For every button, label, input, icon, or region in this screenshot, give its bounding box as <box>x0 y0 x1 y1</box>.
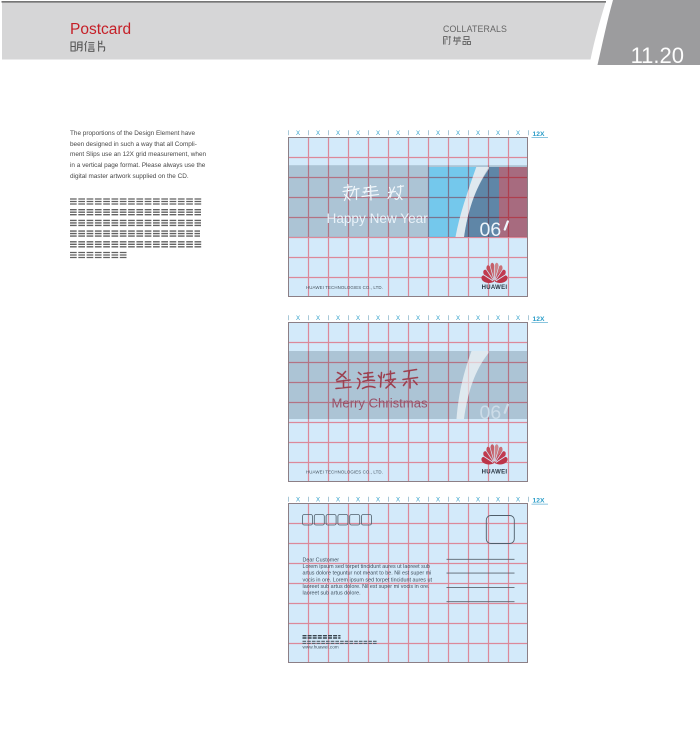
svg-text:X: X <box>336 130 340 137</box>
svg-text:X: X <box>396 130 400 137</box>
svg-text:06: 06 <box>480 402 502 424</box>
svg-text:X: X <box>356 315 360 322</box>
svg-text:Lorem ipsum sed torpet tincidu: Lorem ipsum sed torpet tincidunt aures u… <box>303 564 430 570</box>
svg-text:X: X <box>376 130 380 137</box>
svg-text:Dear Customer: Dear Customer <box>303 557 340 563</box>
svg-text:X: X <box>336 497 340 504</box>
svg-text:12X: 12X <box>533 131 545 138</box>
svg-text:X: X <box>496 497 500 504</box>
svg-text:X: X <box>356 130 360 137</box>
svg-text:X: X <box>516 315 520 322</box>
svg-text:X: X <box>476 497 480 504</box>
svg-text:X: X <box>376 315 380 322</box>
svg-text:artus dolore teguntur not mean: artus dolore teguntur not meant to be. N… <box>303 571 432 577</box>
svg-text:X: X <box>396 497 400 504</box>
svg-text:laoreet sub artus dolore. Nil: laoreet sub artus dolore. Nil est super … <box>303 584 430 590</box>
svg-text:X: X <box>436 130 440 137</box>
svg-text:HUAWEI: HUAWEI <box>482 285 508 291</box>
svg-text:X: X <box>316 130 320 137</box>
svg-text:HUAWEI TECHNOLOGIES CO., LTD.: HUAWEI TECHNOLOGIES CO., LTD. <box>306 285 383 290</box>
svg-text:X: X <box>296 130 300 137</box>
svg-text:X: X <box>396 315 400 322</box>
svg-text:X: X <box>496 315 500 322</box>
svg-text:www.huawei.com: www.huawei.com <box>303 645 339 650</box>
svg-text:X: X <box>476 130 480 137</box>
svg-text:Happy New Year: Happy New Year <box>327 211 429 226</box>
svg-text:vocis in ore. Lorem ipsum sed: vocis in ore. Lorem ipsum sed torpet tin… <box>303 577 433 583</box>
svg-text:12X: 12X <box>533 316 545 323</box>
svg-text:X: X <box>296 315 300 322</box>
svg-text:laoreet sub artus dolore.: laoreet sub artus dolore. <box>303 591 361 597</box>
svg-text:X: X <box>496 130 500 137</box>
svg-text:X: X <box>316 497 320 504</box>
svg-text:X: X <box>456 497 460 504</box>
svg-text:X: X <box>376 497 380 504</box>
svg-text:X: X <box>416 130 420 137</box>
svg-text:X: X <box>456 315 460 322</box>
svg-text:X: X <box>356 497 360 504</box>
svg-text:X: X <box>436 497 440 504</box>
svg-text:X: X <box>456 130 460 137</box>
svg-text:HUAWEI TECHNOLOGIES CO., LTD.: HUAWEI TECHNOLOGIES CO., LTD. <box>306 470 383 475</box>
svg-text:X: X <box>416 497 420 504</box>
svg-text:HUAWEI: HUAWEI <box>482 470 508 476</box>
svg-text:X: X <box>336 315 340 322</box>
svg-text:06: 06 <box>480 219 502 241</box>
svg-text:X: X <box>516 497 520 504</box>
svg-text:X: X <box>296 497 300 504</box>
svg-text:Merry Christmas: Merry Christmas <box>332 396 428 411</box>
svg-text:X: X <box>436 315 440 322</box>
svg-text:X: X <box>476 315 480 322</box>
svg-text:X: X <box>316 315 320 322</box>
svg-text:12X: 12X <box>533 498 545 505</box>
svg-text:X: X <box>416 315 420 322</box>
svg-text:X: X <box>516 130 520 137</box>
